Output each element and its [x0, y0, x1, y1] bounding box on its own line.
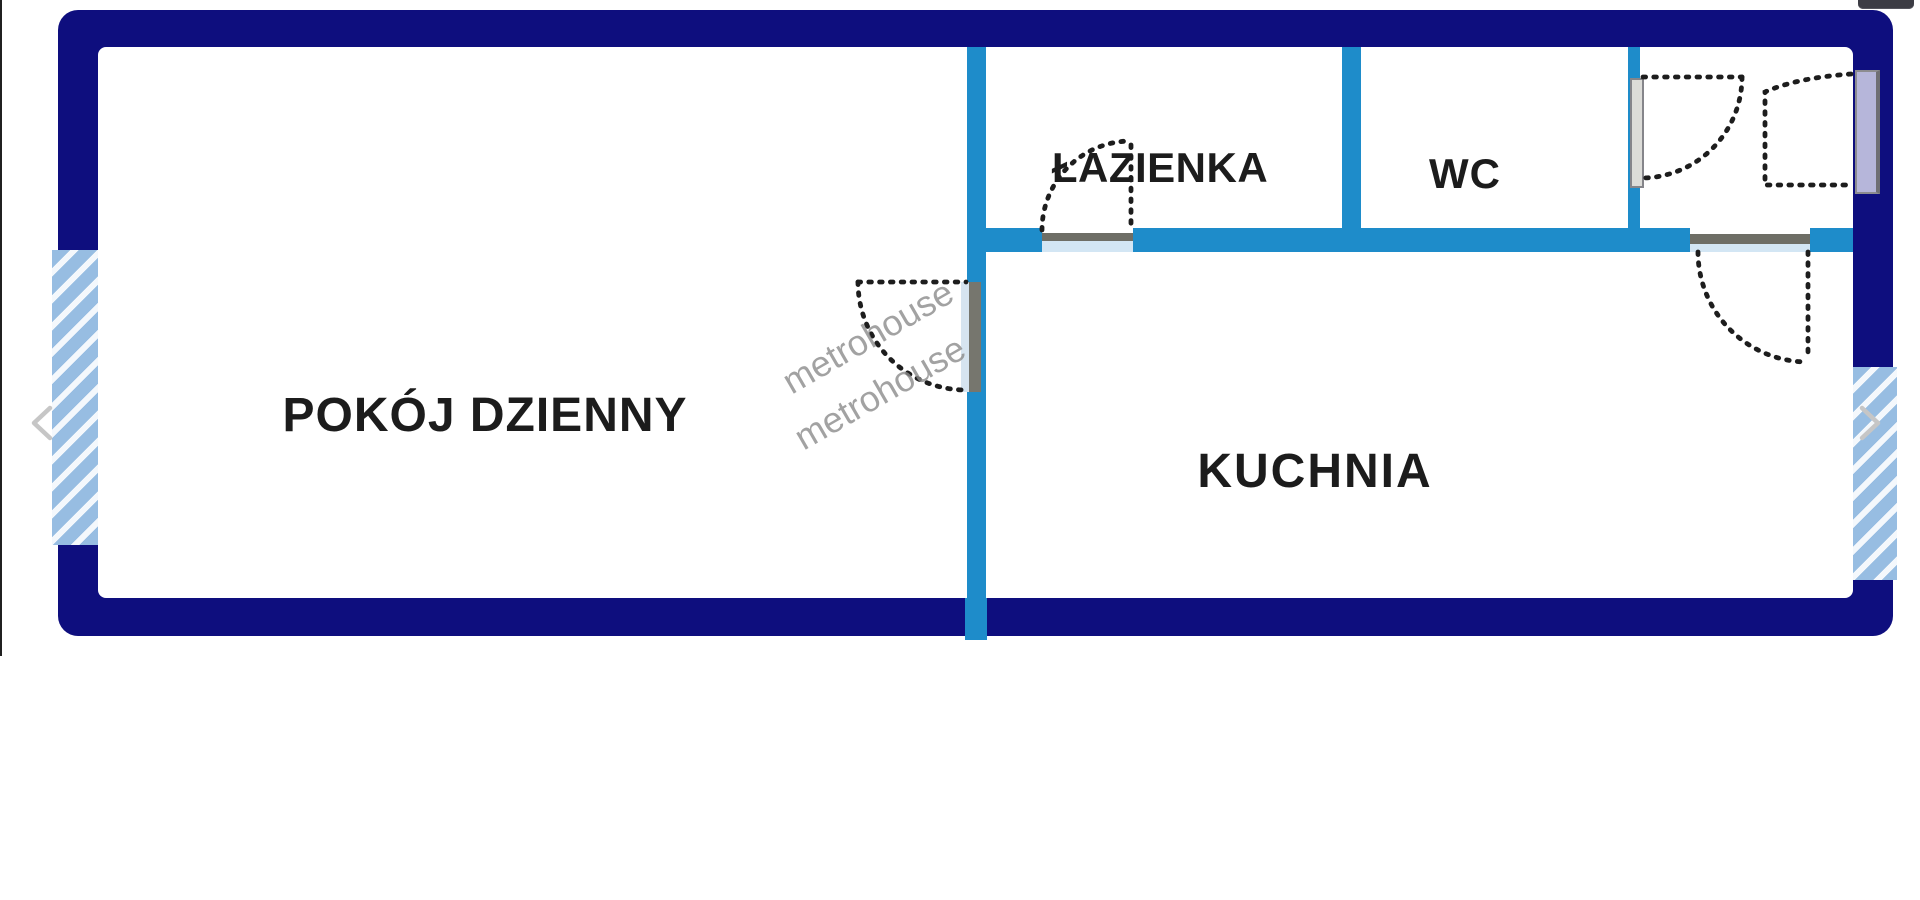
kitchen-door-arc	[1698, 252, 1808, 362]
chevron-right-icon[interactable]	[1862, 408, 1878, 438]
door-swing-overlay	[0, 0, 1920, 900]
floor-plan-photo-viewer: POKÓJ DZIENNY KUCHNIA ŁAZIENKA WC metroh…	[0, 0, 1920, 900]
living-room-door-arc	[858, 282, 966, 390]
chevron-left-icon[interactable]	[34, 408, 50, 438]
room-label-bathroom: ŁAZIENKA	[960, 144, 1360, 192]
wc-door-arc	[1643, 77, 1742, 178]
room-label-kitchen: KUCHNIA	[1115, 444, 1515, 499]
entrance-door-arc	[1765, 74, 1851, 185]
room-label-living-room: POKÓJ DZIENNY	[185, 388, 785, 443]
room-label-wc: WC	[1365, 150, 1565, 198]
